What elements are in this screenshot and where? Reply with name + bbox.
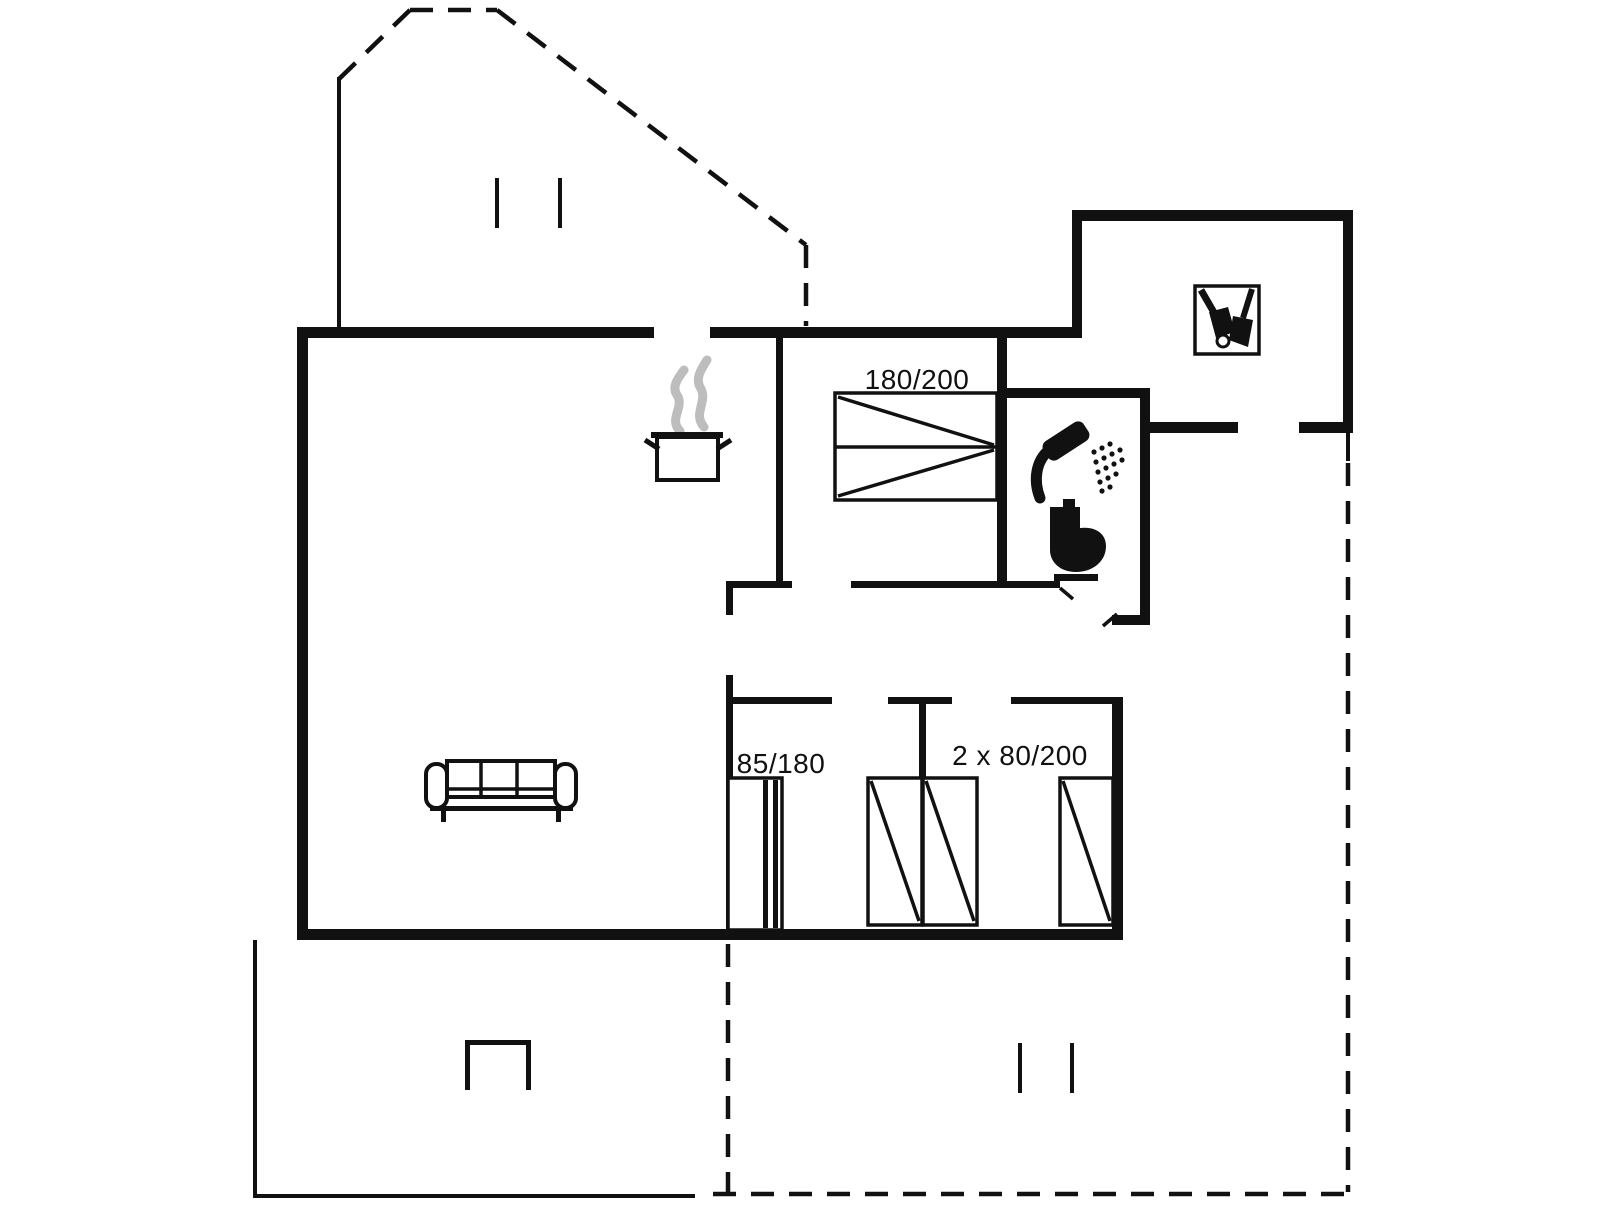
wall-top-mid [710,327,1082,338]
shower-icon [1036,419,1124,498]
wall-left [297,327,308,940]
sofa-leg-left [441,811,446,822]
terrace-tick-top-2 [558,178,562,228]
shower-head [1040,419,1092,464]
shower-spray [1091,441,1124,493]
terrace-tick-top-1 [495,178,499,228]
vacuum-wheel [1217,335,1229,347]
cooking-pot-icon [645,360,731,480]
pot-body [657,437,718,480]
terrace-right-stub [1346,433,1350,461]
toilet-base [1054,574,1098,581]
wall-entry-right [1343,210,1353,433]
toilet-button [1063,499,1075,507]
shower-arm [1036,450,1049,498]
wall-hall-top-b [851,581,1060,588]
cleaning-tools-icon [1195,286,1259,354]
twin-bed-size-label: 2 x 80/200 [952,740,1088,772]
wall-entry-top [1072,210,1353,221]
wall-bath-top [997,388,1150,398]
wall-entry-left [1072,210,1082,338]
single-bed-rail-2 [773,780,778,928]
sofa-arm-left [426,764,447,808]
wall-kitchen-divider [776,338,783,585]
terrace-solid-lines [253,77,1350,1198]
terrace-step-marker [465,1040,531,1045]
sofa-cushions [447,761,555,797]
wall-hall-stub [726,581,733,615]
terrace-step-marker-right [526,1040,531,1090]
double-bed-icon [835,393,997,500]
wall-entry-south-a [1150,422,1238,433]
wall-bath-door-stub [1112,615,1150,625]
sofa-arm-right [555,764,576,808]
terrace-left-edge-bottom [253,940,257,1198]
bath-door-swing-left [1060,588,1073,599]
single-bed-size-label: 85/180 [737,748,826,780]
sofa-base [430,806,573,811]
toilet-tank [1050,507,1080,522]
wall-hall-bottom-c [1011,697,1117,704]
single-bed-rail-1 [763,780,768,928]
terrace-tick-bottom-2 [1070,1043,1074,1093]
single-bed-icon [728,778,782,930]
toilet-icon [1050,499,1106,581]
toilet-bowl [1050,522,1106,572]
door-swings [1060,588,1117,626]
wall-hall-bottom-a [726,697,832,704]
wall-top-left [297,327,654,338]
terrace-outline [339,10,1348,1194]
wall-bath-right [1140,388,1150,625]
terrace-bottom-edge [253,1194,695,1198]
wall-entry-south-b [1299,422,1353,433]
roof-dash-right-diagonal [497,10,806,245]
double-bed-size-label: 180/200 [865,364,970,396]
floor-plan-page: 180/200 85/180 2 x 80/200 [0,0,1606,1205]
floor-plan-drawing [0,0,1606,1205]
wall-hall-top-a [726,581,792,588]
steam-icon [675,360,707,431]
sofa-leg-right [556,811,561,822]
roof-dash-left-diagonal [339,10,410,79]
twin-beds-icon [868,778,1113,925]
terrace-tick-bottom-1 [1018,1043,1022,1093]
terrace-left-edge-top [337,77,341,329]
terrace-step-marker-left [465,1040,470,1090]
sofa-icon [426,761,576,822]
wall-bottom [297,929,1123,940]
